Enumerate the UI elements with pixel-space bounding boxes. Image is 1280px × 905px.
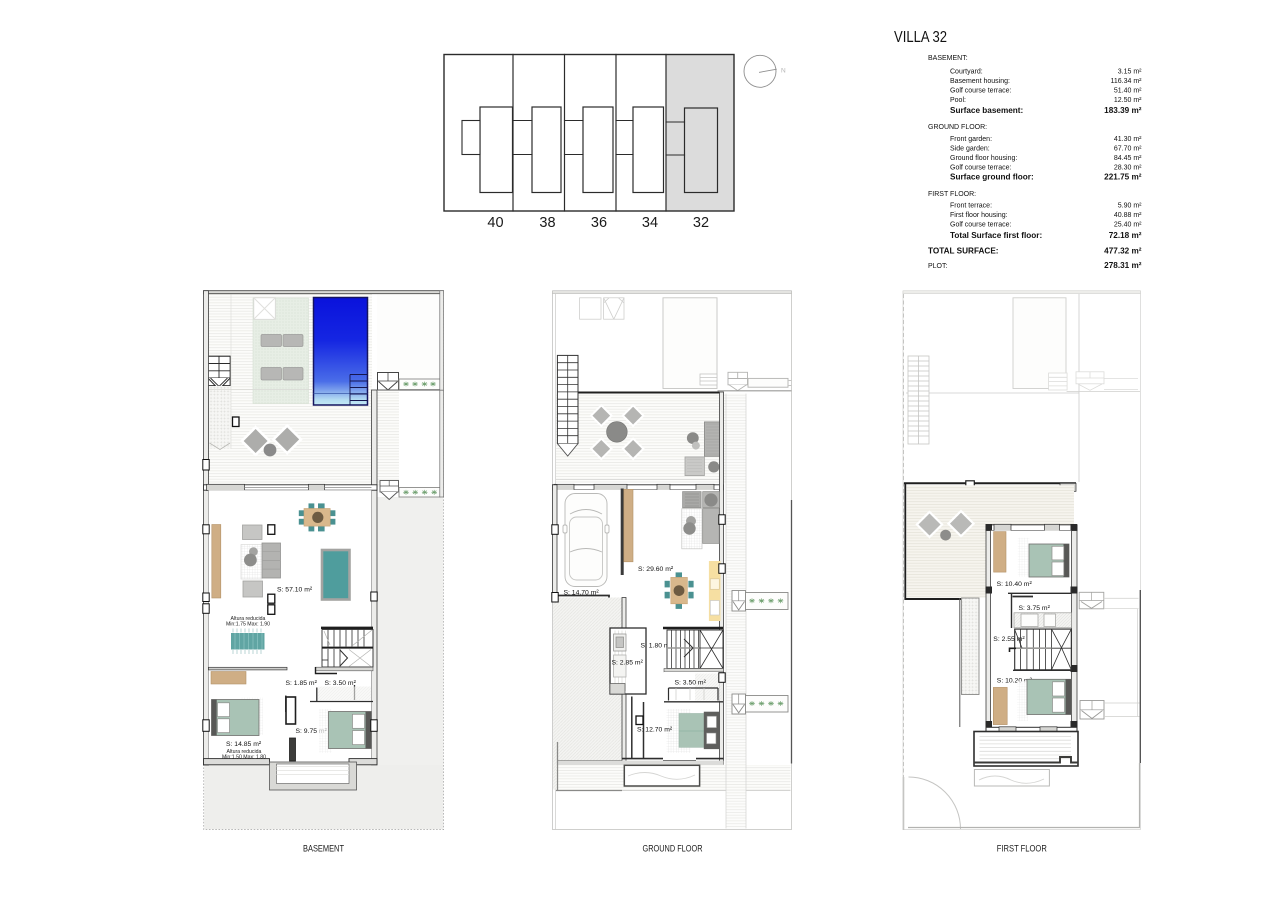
svg-text:S: 3.75 m²: S: 3.75 m² <box>1019 605 1051 612</box>
svg-text:BASEMENT: BASEMENT <box>303 844 344 855</box>
svg-text:GROUND FLOOR: GROUND FLOOR <box>643 844 703 855</box>
svg-text:Side garden:: Side garden: <box>950 146 990 153</box>
svg-text:3.15 m²: 3.15 m² <box>1118 69 1142 76</box>
svg-text:S: 2.55 m²: S: 2.55 m² <box>993 636 1025 643</box>
svg-text:12.50 m²: 12.50 m² <box>1114 97 1142 104</box>
svg-text:S: 2.85 m²: S: 2.85 m² <box>612 659 644 666</box>
svg-text:25.40 m²: 25.40 m² <box>1114 222 1142 229</box>
svg-text:S: 1.85 m²: S: 1.85 m² <box>286 680 318 687</box>
svg-text:116.34 m²: 116.34 m² <box>1111 78 1143 85</box>
svg-text:Surface basement:: Surface basement: <box>950 106 1023 115</box>
svg-text:40.88 m²: 40.88 m² <box>1114 212 1142 219</box>
svg-text:GROUND FLOOR:: GROUND FLOOR: <box>928 124 987 131</box>
svg-text:72.18 m²: 72.18 m² <box>1109 231 1142 240</box>
svg-text:TOTAL SURFACE:: TOTAL SURFACE: <box>928 247 999 256</box>
svg-text:67.70 m²: 67.70 m² <box>1114 146 1142 153</box>
svg-text:32: 32 <box>693 215 709 231</box>
svg-text:S: 29.60 m²: S: 29.60 m² <box>638 566 674 573</box>
svg-text:Courtyard:: Courtyard: <box>950 69 983 76</box>
svg-text:S: 14.85 m²: S: 14.85 m² <box>226 741 262 748</box>
svg-text:183.39 m²: 183.39 m² <box>1104 106 1142 115</box>
svg-text:N: N <box>781 68 786 75</box>
svg-text:S: 3.50 m²: S: 3.50 m² <box>325 680 357 687</box>
svg-text:VILLA 32: VILLA 32 <box>894 29 947 46</box>
svg-text:40: 40 <box>487 215 503 231</box>
svg-text:Golf course terrace:: Golf course terrace: <box>950 222 1012 229</box>
svg-text:84.45 m²: 84.45 m² <box>1114 155 1142 162</box>
svg-text:51.40 m²: 51.40 m² <box>1114 88 1142 95</box>
svg-text:28.30 m²: 28.30 m² <box>1114 165 1142 172</box>
svg-text:221.75 m²: 221.75 m² <box>1104 173 1142 182</box>
svg-text:41.30 m²: 41.30 m² <box>1114 136 1142 143</box>
svg-text:Golf course terrace:: Golf course terrace: <box>950 165 1012 172</box>
svg-text:477.32 m²: 477.32 m² <box>1104 247 1142 256</box>
svg-text:PLOT:: PLOT: <box>928 263 948 270</box>
svg-text:36: 36 <box>591 215 607 231</box>
svg-text:First floor housing:: First floor housing: <box>950 212 1008 219</box>
svg-text:Total Surface first floor:: Total Surface first floor: <box>950 231 1042 240</box>
svg-text:Front garden:: Front garden: <box>950 136 992 143</box>
svg-text:S: 3.50 m²: S: 3.50 m² <box>675 680 707 687</box>
svg-text:Basement housing:: Basement housing: <box>950 78 1010 85</box>
svg-text:Pool:: Pool: <box>950 97 966 104</box>
svg-text:38: 38 <box>539 215 555 231</box>
svg-text:Front terrace:: Front terrace: <box>950 203 992 210</box>
svg-text:278.31 m²: 278.31 m² <box>1104 261 1142 270</box>
svg-text:Min:1.75 Max: 1.90: Min:1.75 Max: 1.90 <box>226 622 270 628</box>
svg-text:Surface ground floor:: Surface ground floor: <box>950 173 1034 182</box>
svg-text:S: 12.70 m²: S: 12.70 m² <box>637 727 673 734</box>
svg-text:FIRST FLOOR:: FIRST FLOOR: <box>928 191 976 198</box>
svg-text:34: 34 <box>642 215 658 231</box>
svg-text:BASEMENT:: BASEMENT: <box>928 55 968 62</box>
svg-text:S: 10.40 m²: S: 10.40 m² <box>997 581 1033 588</box>
svg-text:5.90 m²: 5.90 m² <box>1118 203 1142 210</box>
svg-text:S: 57.10 m²: S: 57.10 m² <box>277 586 313 593</box>
svg-text:Golf course terrace:: Golf course terrace: <box>950 88 1012 95</box>
svg-text:Ground floor housing:: Ground floor housing: <box>950 155 1017 162</box>
svg-text:FIRST FLOOR: FIRST FLOOR <box>997 844 1047 855</box>
